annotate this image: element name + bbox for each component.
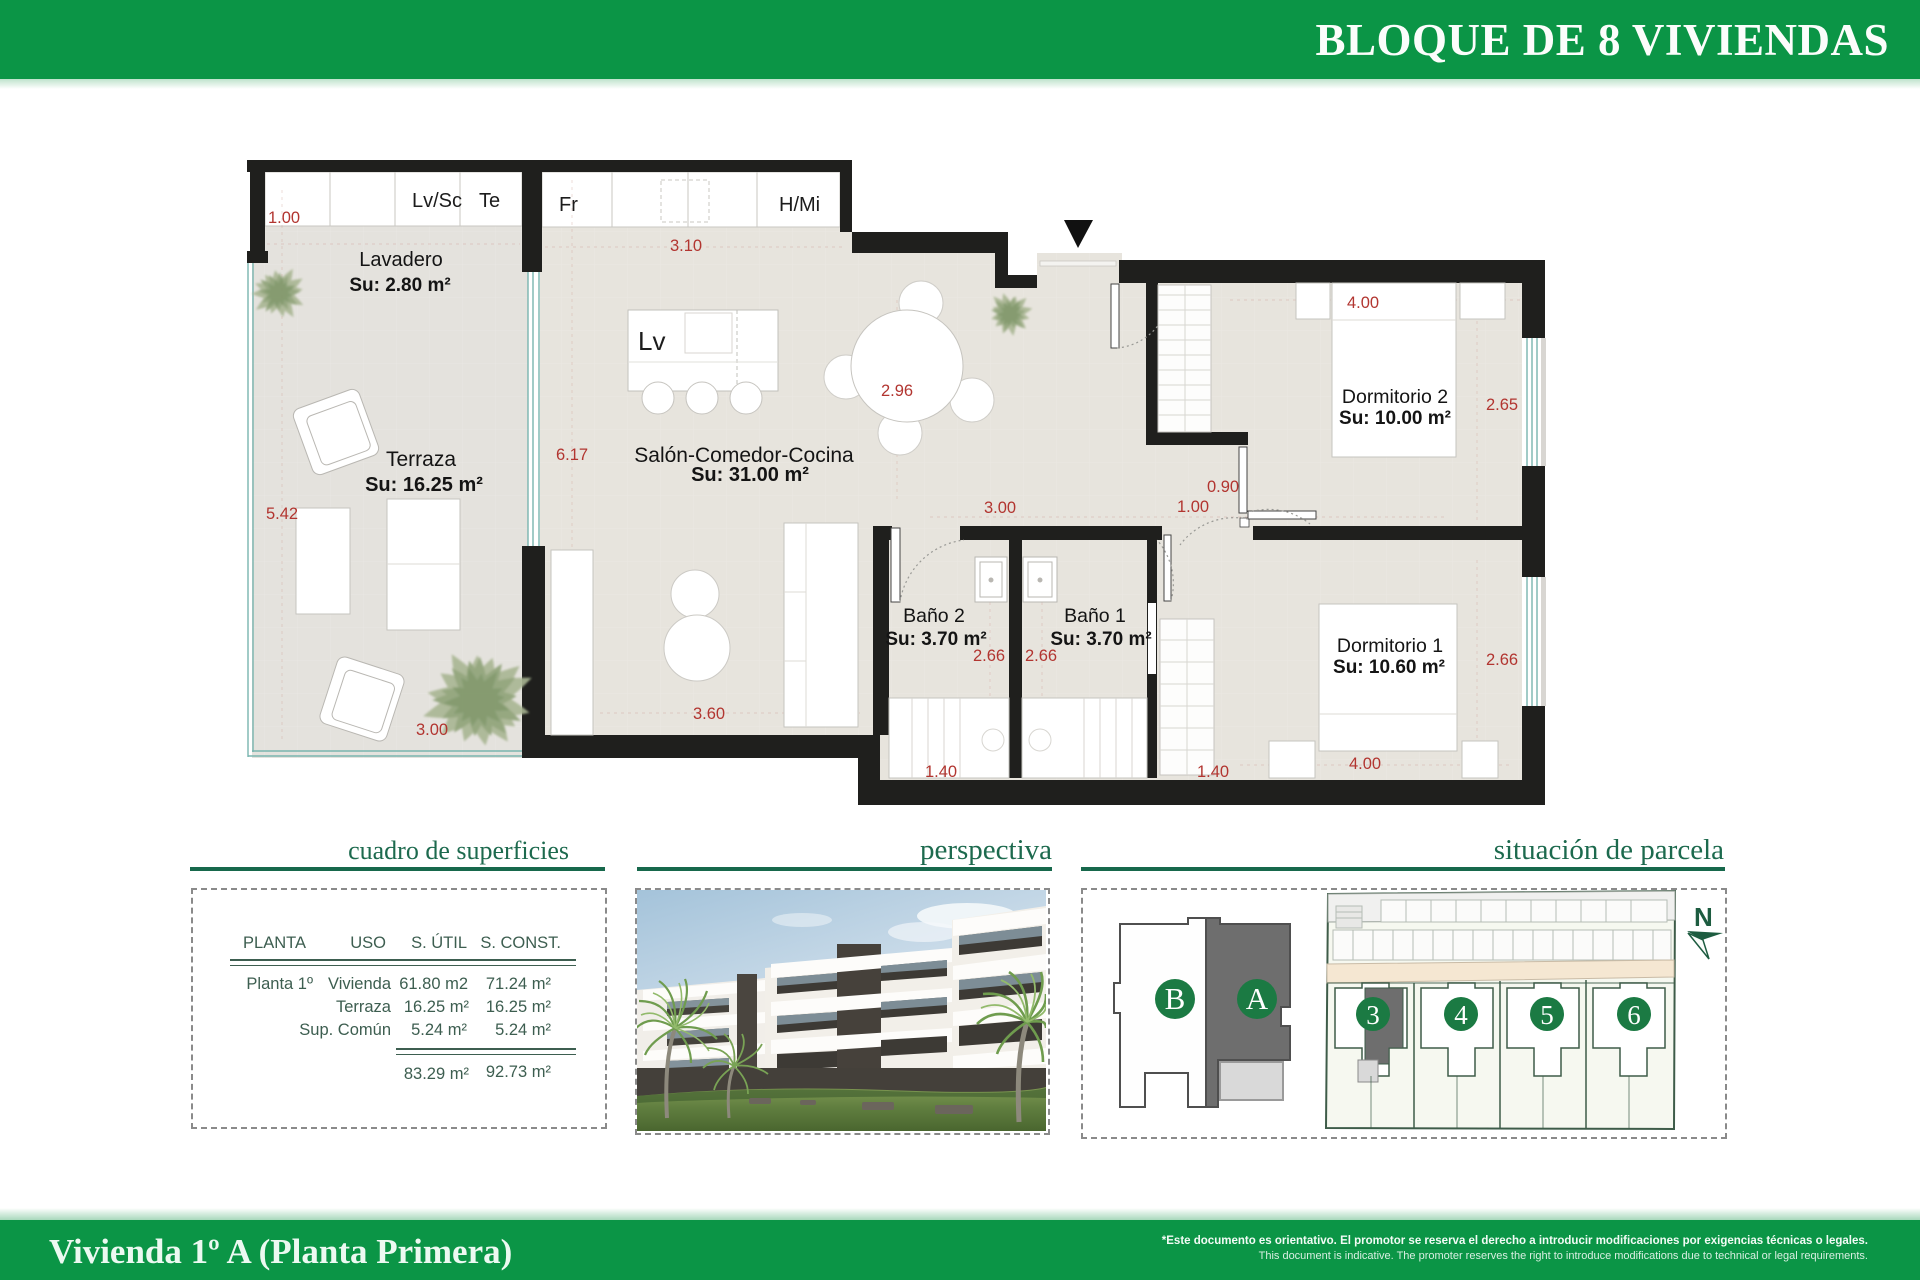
svg-text:6.17: 6.17 — [556, 446, 588, 464]
svg-text:Baño 2: Baño 2 — [903, 605, 965, 627]
svg-text:3.60: 3.60 — [693, 705, 725, 723]
svg-text:Su: 3.70 m²: Su: 3.70 m² — [1050, 629, 1151, 650]
svg-text:0.90: 0.90 — [1207, 478, 1239, 496]
svg-text:6: 6 — [1627, 1000, 1641, 1030]
svg-text:Su: 31.00 m²: Su: 31.00 m² — [691, 464, 809, 486]
svg-text:2.65: 2.65 — [1486, 396, 1518, 414]
svg-text:Su: 16.25 m²: Su: 16.25 m² — [365, 474, 483, 496]
svg-text:5: 5 — [1540, 1000, 1554, 1030]
svg-text:4: 4 — [1454, 1000, 1468, 1030]
svg-text:1.40: 1.40 — [1197, 763, 1229, 781]
svg-text:3.00: 3.00 — [984, 499, 1016, 517]
svg-text:Lv/Sc: Lv/Sc — [412, 190, 462, 212]
svg-text:Te: Te — [479, 190, 500, 212]
svg-text:2.96: 2.96 — [881, 382, 913, 400]
svg-text:1.00: 1.00 — [1177, 498, 1209, 516]
svg-text:Lavadero: Lavadero — [359, 249, 442, 271]
svg-text:Baño 1: Baño 1 — [1064, 605, 1126, 627]
svg-text:2.66: 2.66 — [1025, 647, 1057, 665]
svg-text:4.00: 4.00 — [1347, 294, 1379, 312]
svg-text:3.10: 3.10 — [670, 237, 702, 255]
svg-text:A: A — [1246, 981, 1269, 1016]
svg-text:2.66: 2.66 — [973, 647, 1005, 665]
svg-text:4.00: 4.00 — [1349, 755, 1381, 773]
svg-text:5.42: 5.42 — [266, 505, 298, 523]
svg-text:1.00: 1.00 — [268, 209, 300, 227]
svg-text:2.66: 2.66 — [1486, 651, 1518, 669]
svg-text:Su: 2.80 m²: Su: 2.80 m² — [349, 275, 450, 296]
svg-text:Terraza: Terraza — [386, 448, 456, 471]
svg-text:Dormitorio 1: Dormitorio 1 — [1337, 635, 1443, 657]
svg-text:N: N — [1694, 902, 1713, 932]
svg-text:1.40: 1.40 — [925, 763, 957, 781]
svg-text:Fr: Fr — [559, 194, 578, 216]
svg-text:Dormitorio 2: Dormitorio 2 — [1342, 386, 1448, 408]
svg-text:3: 3 — [1366, 1000, 1380, 1030]
svg-text:Su: 3.70 m²: Su: 3.70 m² — [885, 629, 986, 650]
svg-text:3.00: 3.00 — [416, 721, 448, 739]
svg-text:B: B — [1165, 981, 1186, 1016]
svg-text:H/Mi: H/Mi — [779, 194, 820, 216]
svg-text:Su: 10.60 m²: Su: 10.60 m² — [1333, 657, 1445, 678]
svg-text:Lv: Lv — [638, 326, 665, 356]
svg-text:Su: 10.00 m²: Su: 10.00 m² — [1339, 408, 1451, 429]
